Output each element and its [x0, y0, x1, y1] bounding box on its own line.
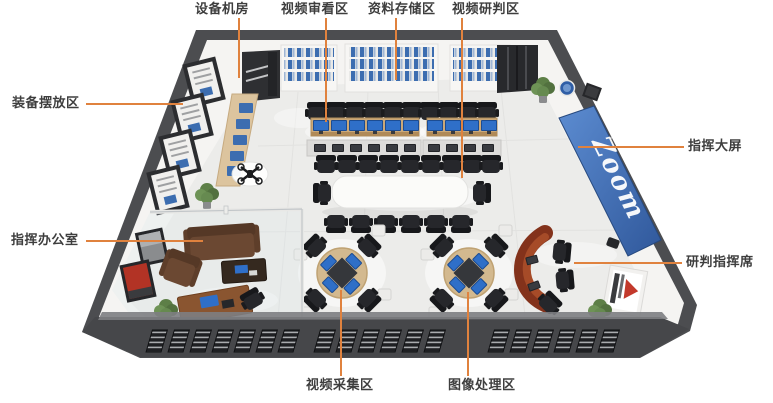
label-data-storage: 资料存储区: [368, 3, 436, 16]
leader-line-equipment-display: [86, 103, 183, 105]
label-command-screen: 指挥大屏: [688, 140, 742, 153]
label-video-capture: 视频采集区: [306, 379, 374, 392]
leader-line-video-judgement: [461, 18, 463, 178]
label-image-processing: 图像处理区: [448, 379, 516, 392]
label-video-review: 视频审看区: [281, 3, 349, 16]
label-equipment-room: 设备机房: [195, 3, 249, 16]
office-coffee-table: [221, 258, 266, 283]
leader-line-image-processing: [467, 292, 469, 376]
wall-emblem: [560, 81, 575, 96]
label-video-judgement: 视频研判区: [452, 3, 520, 16]
workstation-desk-row-1: [311, 118, 497, 136]
leader-line-equipment-room: [238, 18, 240, 78]
label-equipment-display: 装备摆放区: [12, 97, 80, 110]
workstation-front-chairs: [314, 155, 503, 173]
back-door: [497, 45, 538, 93]
label-judgement-seat: 研判指挥席: [686, 256, 754, 269]
leader-line-video-capture: [340, 290, 342, 376]
drone: [232, 162, 268, 186]
leader-line-command-office: [86, 240, 203, 242]
front-wall: [82, 312, 689, 357]
floorplan-figure: Zoom: [0, 0, 773, 403]
workstation-desk-row-2: [307, 140, 501, 156]
leader-line-video-review: [325, 18, 327, 122]
leader-line-data-storage: [395, 18, 397, 80]
leader-line-judgement-seat: [574, 262, 682, 264]
leader-line-command-screen: [578, 146, 684, 148]
label-command-office: 指挥办公室: [11, 234, 79, 247]
floorplan-rendering: Zoom: [0, 0, 773, 403]
